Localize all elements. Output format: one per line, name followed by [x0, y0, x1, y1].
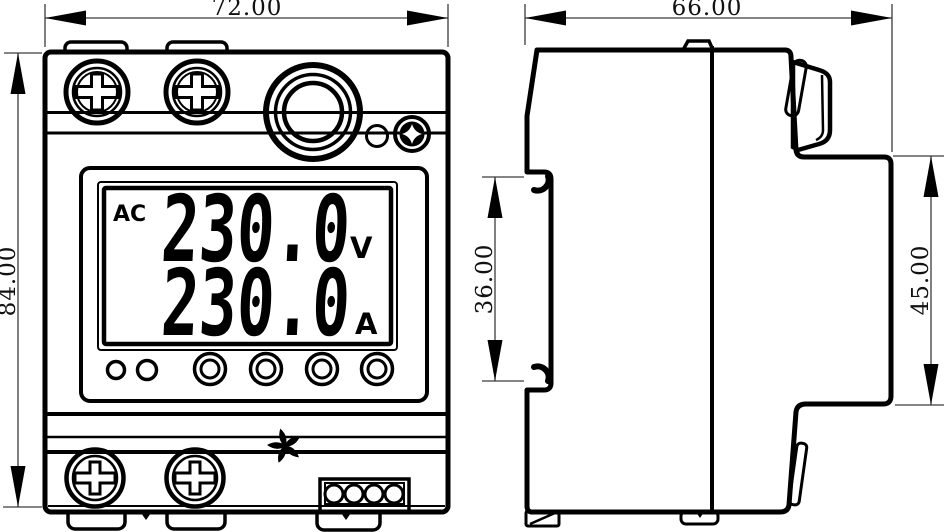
arrowhead-up [924, 156, 939, 197]
technical-drawing-page: 72.00 84.00 [0, 0, 946, 532]
front-section-dimension: 45.00 [893, 156, 944, 405]
side-view: 66.00 36.00 45.00 [472, 0, 944, 526]
lcd-current-unit: A [355, 307, 378, 341]
lcd-current-value: 230.0 [159, 250, 353, 357]
arrowhead-down [924, 364, 939, 405]
arrowhead-up [11, 53, 26, 94]
rail-slot-value: 36.00 [472, 244, 498, 315]
side-enclosure-outline [527, 50, 891, 512]
top-clip-bump [683, 41, 713, 50]
arrowhead-left [45, 11, 86, 26]
tab-notch [141, 513, 151, 520]
front-height-dimension: 84.00 [0, 53, 42, 507]
reset-set-screw [395, 117, 429, 151]
tab-notch [341, 513, 351, 520]
front-width-value: 72.00 [212, 0, 283, 21]
front-height-value: 84.00 [0, 246, 21, 317]
dimension-drawing-svg: 72.00 84.00 [0, 0, 946, 532]
tab-notch [696, 512, 704, 518]
knob-side-profile [785, 59, 830, 150]
arrowhead-up [488, 177, 503, 218]
din-rail-hooks [534, 176, 549, 381]
arrowhead-right [851, 11, 892, 26]
arrowhead-right [407, 11, 448, 26]
lcd-mode-label: AC [113, 202, 146, 227]
arrowhead-left [525, 11, 566, 26]
lcd-voltage-unit: V [350, 231, 373, 265]
arrowhead-down [11, 466, 26, 507]
side-width-value: 66.00 [672, 0, 743, 21]
rail-slot-dimension: 36.00 [472, 177, 524, 381]
arrowhead-down [488, 340, 503, 381]
front-section-value: 45.00 [908, 245, 934, 316]
front-view: 72.00 84.00 [0, 0, 448, 530]
front-width-dimension: 72.00 [45, 0, 448, 47]
